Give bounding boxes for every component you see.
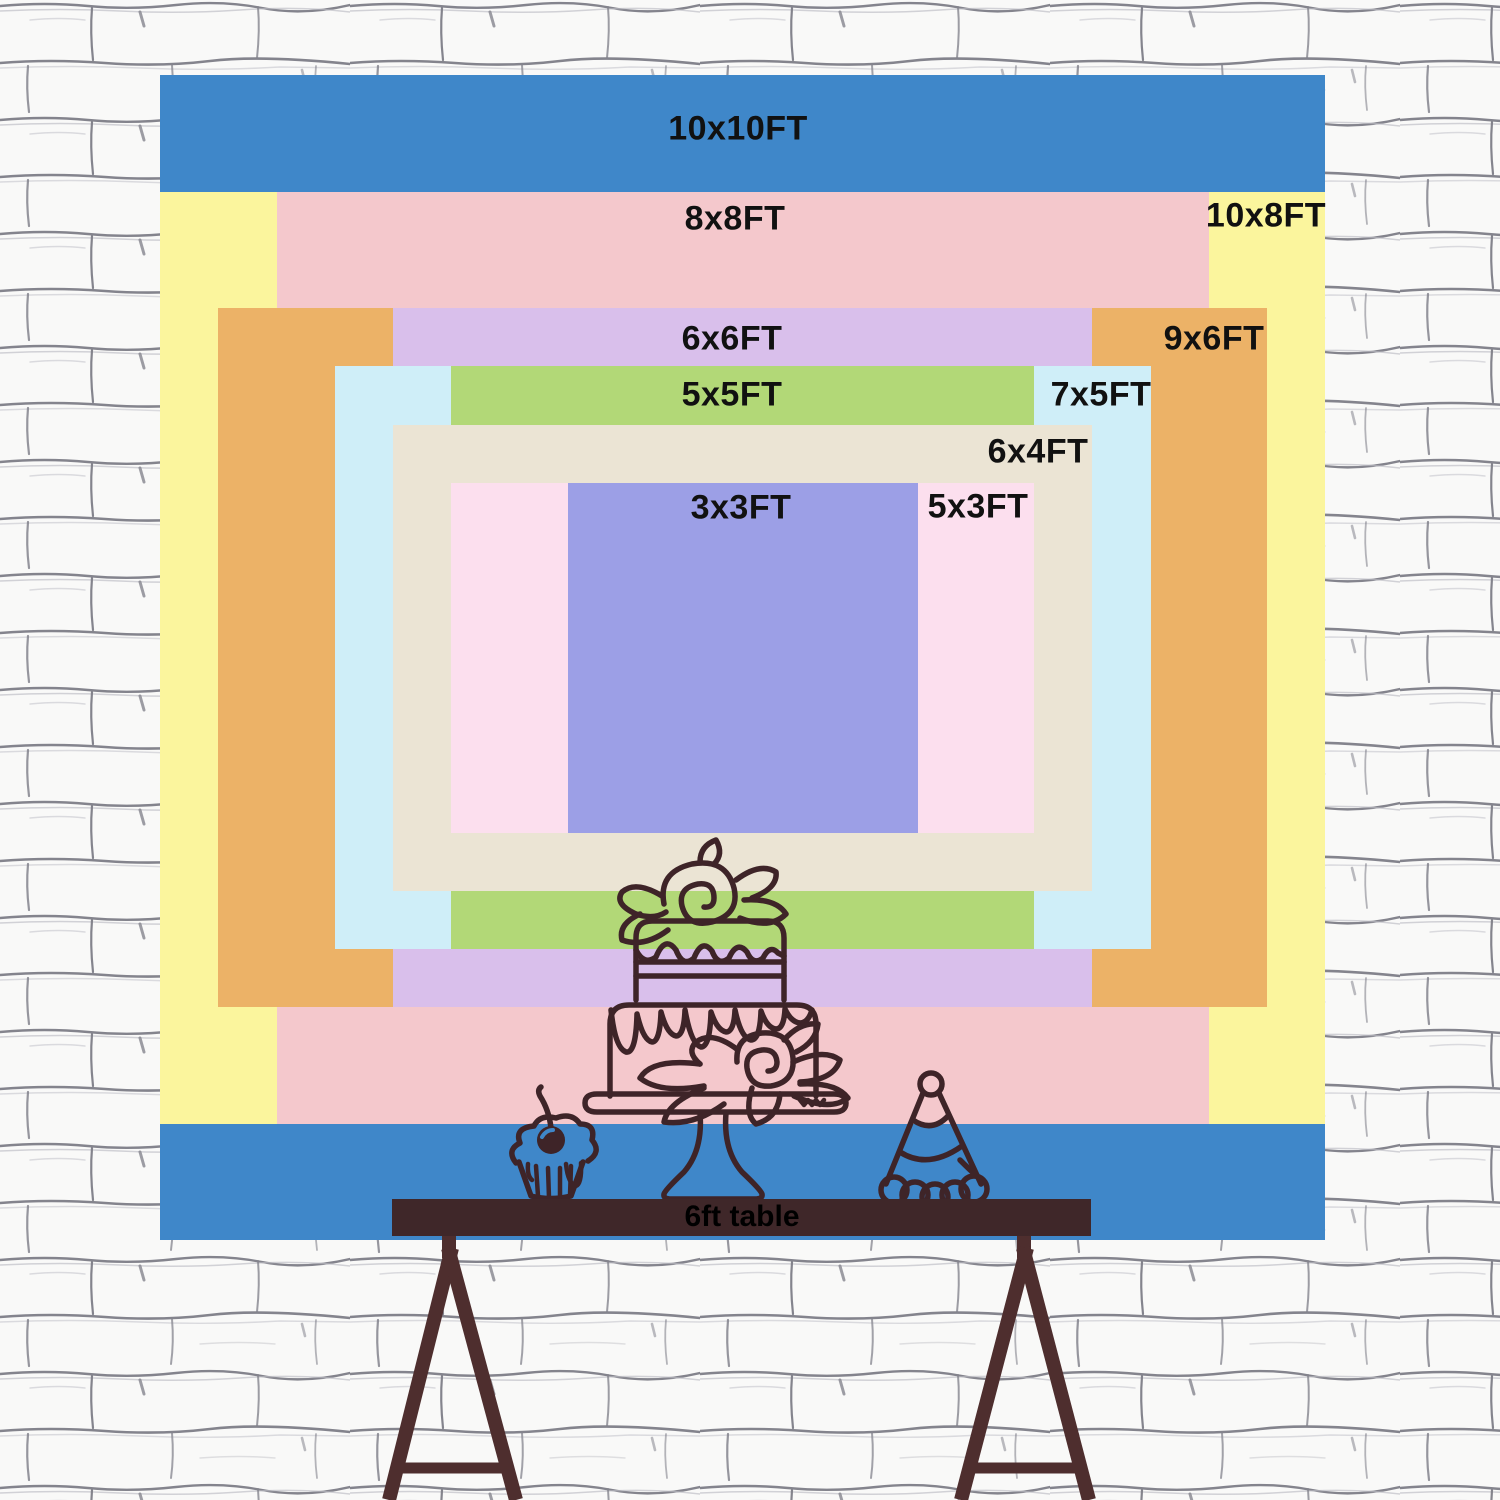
size-label-3x3: 3x3FT (691, 489, 792, 528)
size-label-5x3: 5x3FT (928, 488, 1029, 527)
size-label-10x10: 10x10FT (668, 110, 808, 149)
size-label-9x6: 9x6FT (1164, 320, 1265, 359)
size-label-7x5: 7x5FT (1051, 376, 1152, 415)
size-label-5x5: 5x5FT (682, 376, 783, 415)
table-label: 6ft table (684, 1200, 799, 1234)
size-label-10x8: 10x8FT (1206, 197, 1326, 236)
size-chart-image: 10x10FT 10x8FT 8x8FT 9x6FT 6x6FT 7x5FT 5… (0, 0, 1500, 1500)
size-rect-3x3 (568, 483, 918, 833)
size-label-6x4: 6x4FT (988, 433, 1089, 472)
size-label-6x6: 6x6FT (682, 320, 783, 359)
backdrop-size-chart: 10x10FT 10x8FT 8x8FT 9x6FT 6x6FT 7x5FT 5… (160, 75, 1325, 1240)
size-label-8x8: 8x8FT (685, 200, 786, 239)
